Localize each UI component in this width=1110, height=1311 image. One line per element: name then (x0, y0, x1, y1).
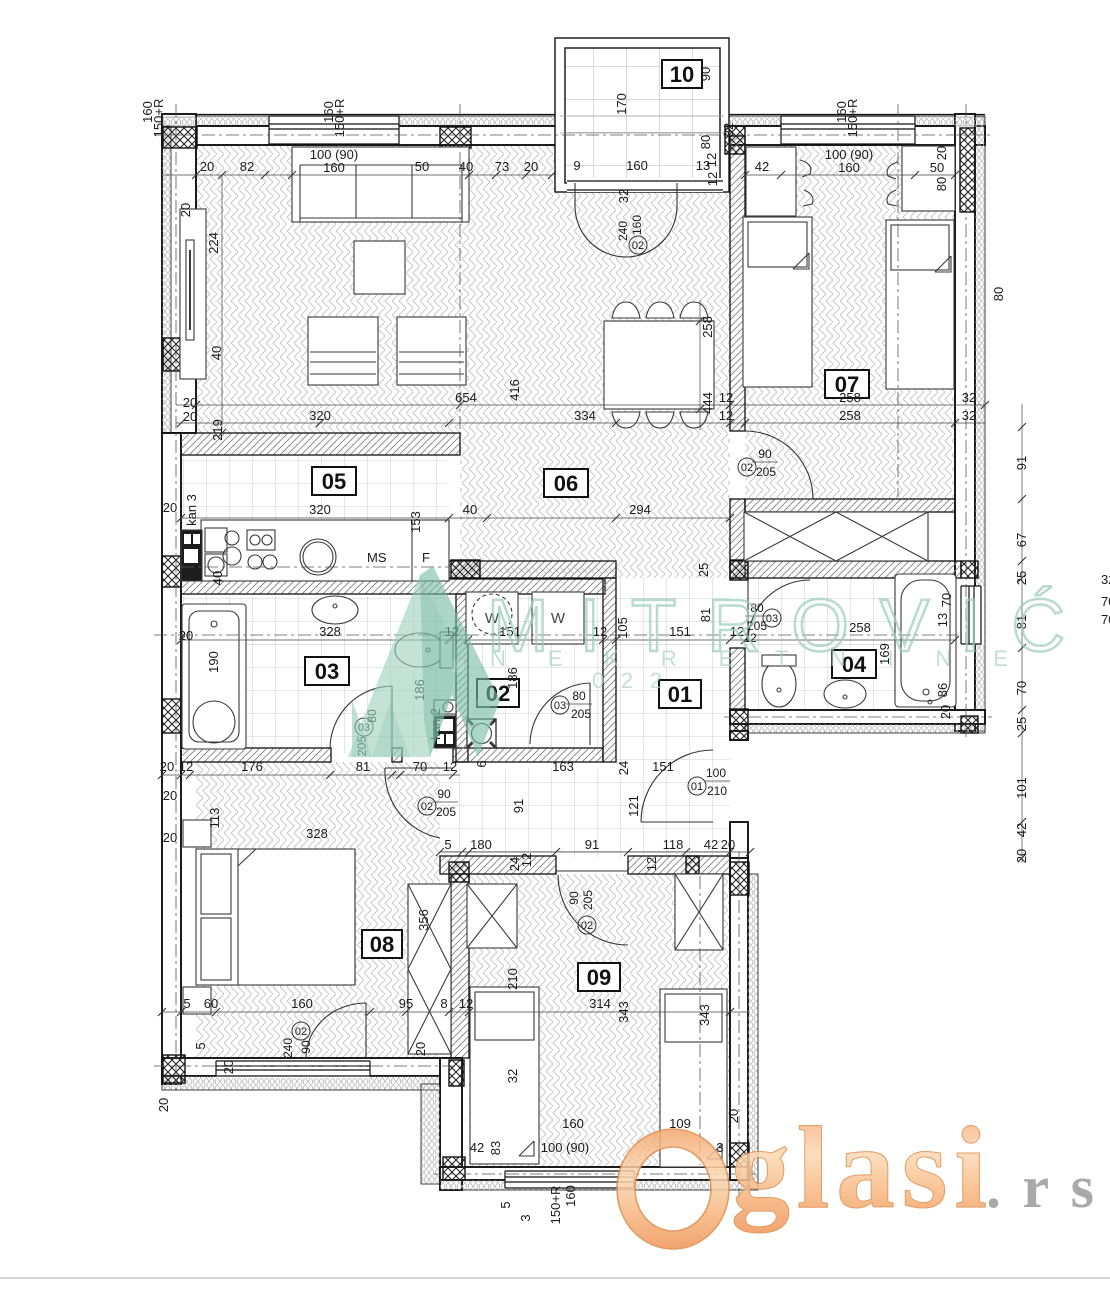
svg-text:81: 81 (356, 759, 370, 774)
svg-text:70: 70 (1101, 594, 1110, 609)
svg-text:160: 160 (562, 1116, 584, 1131)
svg-text:205: 205 (571, 707, 591, 721)
svg-text:20: 20 (183, 395, 197, 410)
svg-text:160: 160 (630, 215, 644, 235)
svg-text:12: 12 (704, 153, 719, 167)
svg-text:40: 40 (459, 159, 473, 174)
svg-text:12: 12 (459, 996, 473, 1011)
svg-text:03: 03 (315, 659, 339, 684)
svg-text:150+R: 150+R (845, 99, 860, 138)
svg-text:150+R: 150+R (548, 1186, 563, 1225)
svg-text:160: 160 (563, 1185, 578, 1207)
svg-text:32: 32 (962, 408, 976, 423)
svg-text:08: 08 (370, 932, 394, 957)
svg-text:90: 90 (698, 67, 713, 81)
svg-text:70: 70 (1101, 612, 1110, 627)
svg-text:20: 20 (938, 705, 953, 719)
svg-text:20: 20 (200, 159, 214, 174)
svg-text:40: 40 (210, 571, 225, 585)
svg-text:20: 20 (156, 1098, 171, 1112)
svg-text:91: 91 (585, 837, 599, 852)
svg-text:12: 12 (519, 853, 534, 867)
svg-text:160: 160 (626, 158, 648, 173)
svg-text:6: 6 (474, 760, 489, 767)
svg-text:70: 70 (413, 759, 427, 774)
svg-text:12: 12 (719, 390, 733, 405)
svg-text:205: 205 (581, 890, 595, 910)
svg-text:42: 42 (1014, 823, 1029, 837)
svg-text:MS: MS (367, 550, 387, 565)
svg-text:343: 343 (697, 1004, 712, 1026)
svg-text:13: 13 (935, 613, 950, 627)
svg-text:20: 20 (163, 500, 177, 515)
svg-text:W: W (551, 610, 566, 627)
svg-text:150+R: 150+R (151, 99, 166, 138)
svg-text:25: 25 (1014, 717, 1029, 731)
svg-text:20: 20 (1014, 849, 1029, 863)
svg-text:444: 444 (700, 392, 715, 414)
svg-text:101: 101 (1014, 777, 1029, 799)
svg-text:100: 100 (706, 766, 726, 780)
svg-text:32: 32 (1101, 572, 1110, 587)
svg-text:82: 82 (240, 159, 254, 174)
svg-text:190: 190 (206, 651, 221, 673)
svg-text:113: 113 (207, 808, 222, 829)
svg-text:90: 90 (758, 447, 772, 461)
svg-text:258: 258 (839, 408, 861, 423)
svg-text:294: 294 (629, 502, 651, 517)
svg-text:240: 240 (281, 1038, 295, 1058)
svg-text:67: 67 (1014, 533, 1029, 547)
svg-text:83: 83 (488, 1141, 503, 1155)
svg-text:24: 24 (616, 761, 631, 775)
svg-text:328: 328 (319, 624, 341, 639)
svg-text:20: 20 (934, 146, 949, 160)
svg-text:160: 160 (291, 996, 313, 1011)
svg-text:100 (90): 100 (90) (541, 1140, 589, 1155)
svg-text:50: 50 (930, 160, 944, 175)
svg-text:06: 06 (554, 471, 578, 496)
svg-text:12: 12 (644, 857, 659, 871)
svg-text:334: 334 (574, 408, 596, 423)
svg-text:121: 121 (626, 795, 641, 817)
svg-text:02: 02 (581, 920, 593, 932)
svg-text:05: 05 (322, 469, 346, 494)
svg-text:5: 5 (444, 837, 451, 852)
svg-text:205: 205 (436, 805, 456, 819)
svg-text:258: 258 (849, 620, 871, 635)
svg-text:20: 20 (524, 159, 538, 174)
svg-text:12: 12 (705, 172, 720, 186)
svg-text:40: 40 (209, 346, 224, 360)
svg-text:180: 180 (470, 837, 492, 852)
svg-text:320: 320 (309, 408, 331, 423)
svg-text:03: 03 (554, 700, 566, 712)
svg-text:654: 654 (455, 390, 477, 405)
svg-text:32: 32 (616, 189, 631, 203)
svg-text:240: 240 (616, 221, 630, 241)
svg-text:170: 170 (614, 93, 629, 115)
svg-text:32: 32 (962, 390, 976, 405)
svg-text:20: 20 (178, 203, 193, 217)
svg-text:343: 343 (616, 1001, 631, 1023)
svg-text:150+R: 150+R (332, 99, 347, 138)
svg-text:25: 25 (696, 563, 711, 577)
svg-text:176: 176 (241, 759, 263, 774)
svg-text:151: 151 (652, 759, 674, 774)
svg-text:60: 60 (204, 996, 218, 1011)
svg-text:40: 40 (463, 502, 477, 517)
svg-text:258: 258 (839, 390, 861, 405)
svg-text:80: 80 (698, 135, 713, 149)
svg-text:20: 20 (721, 837, 735, 852)
svg-text:160: 160 (838, 160, 860, 175)
svg-text:105: 105 (615, 617, 630, 639)
svg-text:02: 02 (741, 462, 753, 474)
svg-text:91: 91 (511, 799, 526, 813)
svg-text:42: 42 (704, 837, 718, 852)
svg-text:118: 118 (663, 837, 684, 852)
svg-text:01: 01 (691, 781, 703, 793)
svg-text:70: 70 (1014, 681, 1029, 695)
svg-text:8: 8 (440, 996, 447, 1011)
svg-text:9: 9 (573, 158, 580, 173)
svg-text:3: 3 (518, 1214, 533, 1221)
svg-text:32: 32 (721, 123, 736, 137)
svg-text:416: 416 (507, 379, 522, 401)
svg-text:5: 5 (498, 1201, 513, 1208)
svg-text:42: 42 (470, 1140, 484, 1155)
svg-text:86: 86 (935, 683, 950, 697)
svg-text:20: 20 (221, 1060, 236, 1074)
svg-text:80: 80 (991, 287, 1006, 301)
svg-text:210: 210 (707, 784, 727, 798)
svg-text:320: 320 (309, 502, 331, 517)
svg-text:kan 3: kan 3 (184, 494, 199, 526)
svg-text:210: 210 (505, 968, 520, 990)
svg-text:314: 314 (589, 996, 611, 1011)
svg-text:32: 32 (505, 1069, 520, 1083)
svg-text:70: 70 (939, 593, 954, 607)
svg-text:20: 20 (160, 759, 174, 774)
svg-text:02: 02 (421, 801, 433, 813)
svg-text:02: 02 (632, 240, 644, 252)
svg-text:328: 328 (306, 826, 328, 841)
svg-text:42: 42 (755, 159, 769, 174)
svg-text:90: 90 (299, 1040, 313, 1054)
svg-text:12: 12 (179, 759, 193, 774)
svg-text:20: 20 (413, 1042, 428, 1056)
svg-text:90: 90 (567, 891, 581, 905)
svg-text:F: F (422, 550, 430, 565)
svg-text:73: 73 (495, 159, 509, 174)
svg-text:91: 91 (1014, 456, 1029, 470)
svg-text:12: 12 (443, 759, 457, 774)
svg-text:163: 163 (552, 759, 574, 774)
svg-text:160: 160 (323, 160, 345, 175)
svg-text:80: 80 (572, 689, 586, 703)
svg-text:09: 09 (587, 965, 611, 990)
svg-text:224: 224 (206, 232, 221, 254)
svg-text:5: 5 (193, 1042, 208, 1049)
svg-text:12: 12 (719, 408, 733, 423)
svg-text:10: 10 (670, 62, 694, 87)
svg-text:219: 219 (210, 419, 225, 441)
svg-text:02: 02 (295, 1026, 307, 1038)
svg-text:356: 356 (416, 909, 431, 931)
svg-text:95: 95 (399, 996, 413, 1011)
svg-text:20: 20 (163, 830, 177, 845)
svg-text:20: 20 (163, 788, 177, 803)
svg-text:90: 90 (437, 787, 451, 801)
svg-text:205: 205 (756, 465, 776, 479)
svg-text:0 2 2: 0 2 2 (592, 668, 662, 693)
svg-text:80: 80 (934, 177, 949, 191)
svg-text:153: 153 (408, 511, 423, 533)
svg-text:50: 50 (415, 159, 429, 174)
svg-text:01: 01 (668, 682, 692, 707)
svg-text:186: 186 (505, 667, 520, 689)
svg-text:03: 03 (766, 613, 778, 625)
svg-text:20: 20 (183, 409, 197, 424)
